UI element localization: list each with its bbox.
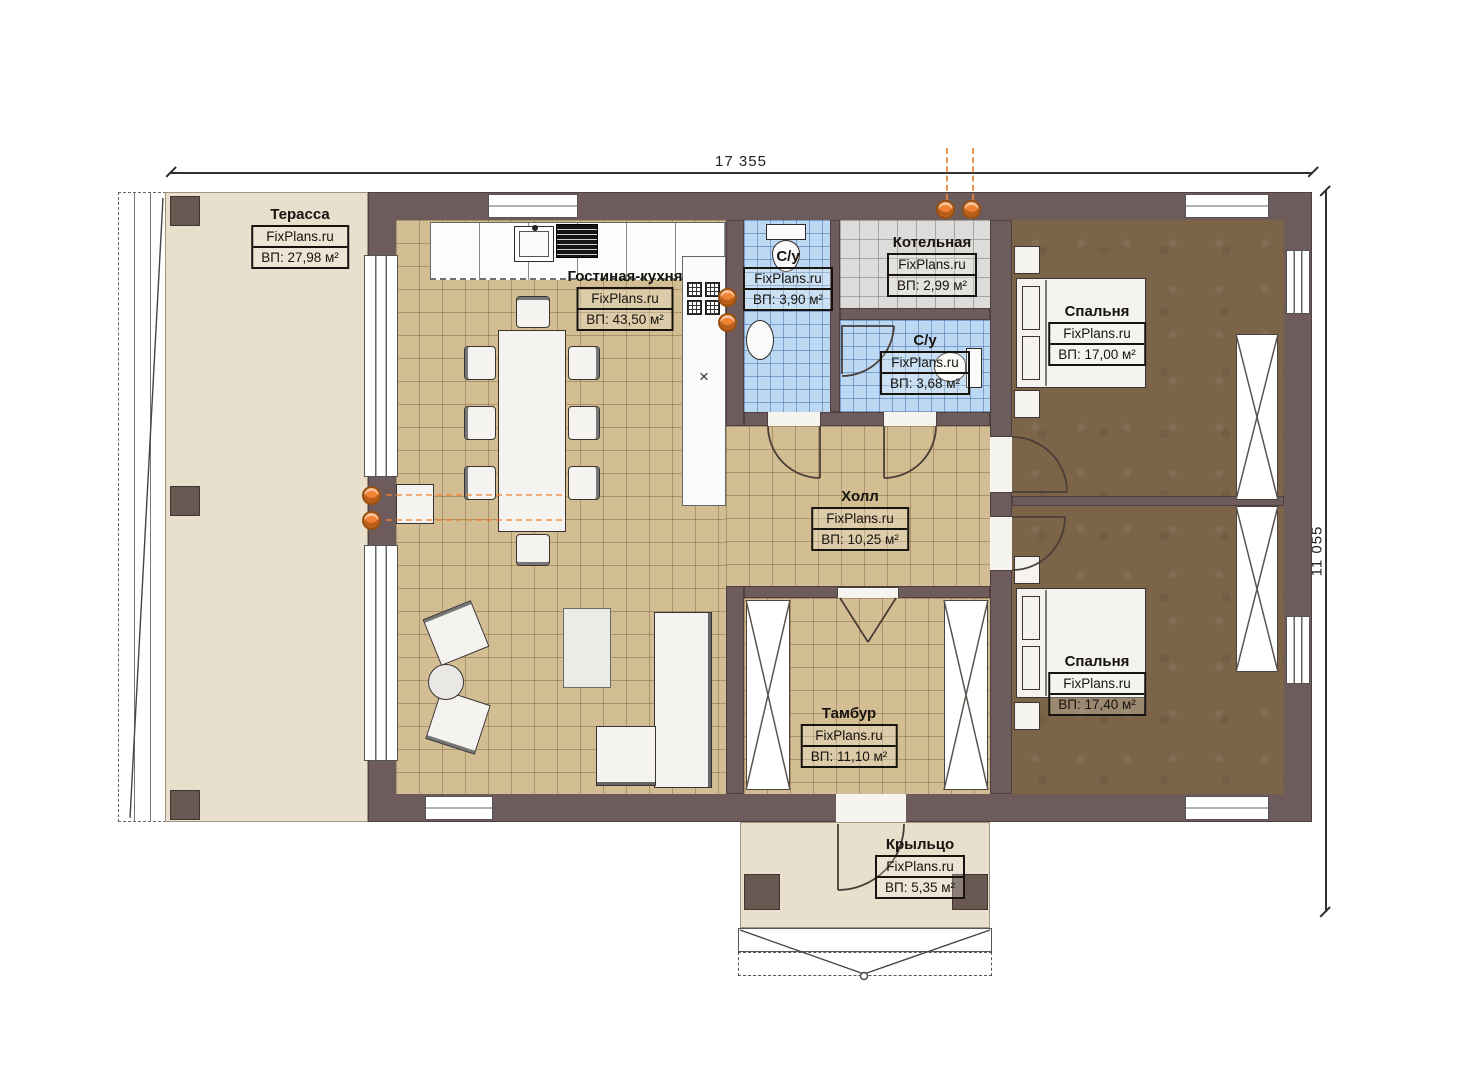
interior-wall xyxy=(990,220,1012,437)
pillow xyxy=(1022,646,1040,690)
oven-stack-icon xyxy=(687,282,720,351)
porch-step xyxy=(738,952,992,976)
room-label-tambour: Тамбур FixPlans.ru ВП: 11,10 м² xyxy=(801,705,898,768)
rug xyxy=(563,608,611,688)
room-area: ВП: 11,10 м² xyxy=(803,745,896,766)
porch-step xyxy=(738,928,992,952)
room-area: ВП: 17,40 м² xyxy=(1050,693,1144,714)
terrace-steps xyxy=(118,192,166,822)
bedroom1-side-window xyxy=(1286,250,1310,314)
room-brand: FixPlans.ru xyxy=(578,289,672,308)
nightstand xyxy=(1014,390,1040,418)
bathroom1-door-opening xyxy=(768,412,820,426)
bedroom1-top-window xyxy=(1185,194,1269,218)
dining-table xyxy=(498,330,566,532)
porch-column xyxy=(744,874,780,910)
sofa-section xyxy=(654,612,712,788)
bedroom2-door-opening xyxy=(990,517,1012,570)
room-label-bedroom1: Спальня FixPlans.ru ВП: 17,00 м² xyxy=(1048,303,1146,366)
heating-riser-icon xyxy=(936,200,955,219)
floor-plan-canvas: 17 355 11 055 xyxy=(0,0,1473,1080)
room-label-porch: Крыльцо FixPlans.ru ВП: 5,35 м² xyxy=(875,836,965,899)
room-name: Холл xyxy=(811,488,909,505)
kitchen-stove-icon xyxy=(556,224,598,258)
dining-chair xyxy=(568,406,600,440)
interior-wall xyxy=(990,492,1012,517)
pillow xyxy=(1022,286,1040,330)
nightstand xyxy=(1014,556,1040,584)
room-name: С/у xyxy=(743,248,833,265)
coffee-table xyxy=(428,664,464,700)
wardrobe xyxy=(1236,506,1278,672)
pillow xyxy=(1022,596,1040,640)
room-name: Котельная xyxy=(887,234,977,251)
room-area: ВП: 10,25 м² xyxy=(813,528,907,549)
heating-riser-icon xyxy=(718,313,737,332)
dimension-width-label: 17 355 xyxy=(715,153,767,170)
room-brand: FixPlans.ru xyxy=(803,726,896,745)
room-area: ВП: 3,68 м² xyxy=(882,372,968,393)
dining-chair xyxy=(464,406,496,440)
room-name: Тамбур xyxy=(801,705,898,722)
room-area: ВП: 27,98 м² xyxy=(253,246,347,267)
entrance-door-opening xyxy=(836,794,906,822)
room-brand: FixPlans.ru xyxy=(877,857,963,876)
room-brand: FixPlans.ru xyxy=(745,269,831,288)
room-area: ВП: 3,90 м² xyxy=(745,288,831,309)
room-area: ВП: 17,00 м² xyxy=(1050,343,1144,364)
room-label-living: Гостиная-кухня FixPlans.ru ВП: 43,50 м² xyxy=(568,268,683,331)
wardrobe xyxy=(944,600,988,790)
terrace-sliding-window xyxy=(364,545,398,761)
interior-wall xyxy=(744,586,838,598)
tambour-door-opening xyxy=(838,586,898,598)
room-brand: FixPlans.ru xyxy=(882,353,968,372)
room-area: ВП: 2,99 м² xyxy=(889,274,975,295)
room-label-wc1: С/у FixPlans.ru ВП: 3,90 м² xyxy=(743,248,833,311)
dining-chair xyxy=(516,534,550,566)
kitchen-window xyxy=(488,194,578,218)
burner-icon xyxy=(687,282,702,297)
dining-chair xyxy=(568,466,600,500)
room-label-hall: Холл FixPlans.ru ВП: 10,25 м² xyxy=(811,488,909,551)
toilet-tank xyxy=(766,224,806,240)
room-name: Терасса xyxy=(251,206,349,223)
terrace-column xyxy=(170,790,200,820)
nightstand xyxy=(1014,702,1040,730)
dining-chair xyxy=(464,346,496,380)
burner-icon xyxy=(687,300,702,315)
heating-riser-icon xyxy=(718,288,737,307)
wardrobe xyxy=(1236,334,1278,500)
room-label-boiler: Котельная FixPlans.ru ВП: 2,99 м² xyxy=(887,234,977,297)
room-label-terrace: Терасса FixPlans.ru ВП: 27,98 м² xyxy=(251,206,349,269)
room-name: Гостиная-кухня xyxy=(568,268,683,285)
wardrobe xyxy=(746,600,790,790)
side-table xyxy=(396,484,434,524)
room-brand: FixPlans.ru xyxy=(1050,324,1144,343)
bathroom2-door-opening xyxy=(884,412,936,426)
room-area: ВП: 5,35 м² xyxy=(877,876,963,897)
interior-wall xyxy=(898,586,990,598)
terrace-column xyxy=(170,196,200,226)
nightstand xyxy=(1014,246,1040,274)
room-brand: FixPlans.ru xyxy=(253,227,347,246)
room-label-bedroom2: Спальня FixPlans.ru ВП: 17,40 м² xyxy=(1048,653,1146,716)
terrace-sliding-window xyxy=(364,255,398,477)
burner-icon xyxy=(705,300,720,315)
interior-wall xyxy=(936,412,990,426)
bedroom2-side-window xyxy=(1286,616,1310,684)
pillow xyxy=(1022,336,1040,380)
washbasin xyxy=(746,320,774,360)
interior-wall xyxy=(726,586,744,794)
dimension-top-line xyxy=(170,172,1312,174)
interior-wall xyxy=(990,570,1012,794)
room-name: Спальня xyxy=(1048,653,1146,670)
sofa-section xyxy=(596,726,656,786)
heating-riser-icon xyxy=(362,511,381,530)
heating-pipe-dash xyxy=(386,494,562,496)
dining-chair xyxy=(516,296,550,328)
room-area: ВП: 43,50 м² xyxy=(578,308,672,329)
room-name: Крыльцо xyxy=(875,836,965,853)
heating-riser-icon xyxy=(962,200,981,219)
dining-chair xyxy=(568,346,600,380)
room-label-wc2: С/у FixPlans.ru ВП: 3,68 м² xyxy=(880,332,970,395)
cross-marker: × xyxy=(684,362,724,392)
interior-wall xyxy=(840,308,990,320)
room-brand: FixPlans.ru xyxy=(813,509,907,528)
heating-riser-icon xyxy=(362,486,381,505)
bedroom2-bottom-window xyxy=(1185,796,1269,820)
room-name: Спальня xyxy=(1048,303,1146,320)
heating-pipe-dash xyxy=(972,148,974,200)
bedroom1-door-opening xyxy=(990,437,1012,492)
living-bottom-window xyxy=(425,796,493,820)
faucet-icon xyxy=(532,225,538,231)
heating-pipe-dash xyxy=(946,148,948,200)
room-brand: FixPlans.ru xyxy=(889,255,975,274)
kitchen-sink xyxy=(514,226,554,262)
interior-wall xyxy=(820,412,884,426)
terrace-column xyxy=(170,486,200,516)
room-brand: FixPlans.ru xyxy=(1050,674,1144,693)
interior-wall xyxy=(744,412,768,426)
room-name: С/у xyxy=(880,332,970,349)
heating-pipe-dash xyxy=(386,519,562,521)
